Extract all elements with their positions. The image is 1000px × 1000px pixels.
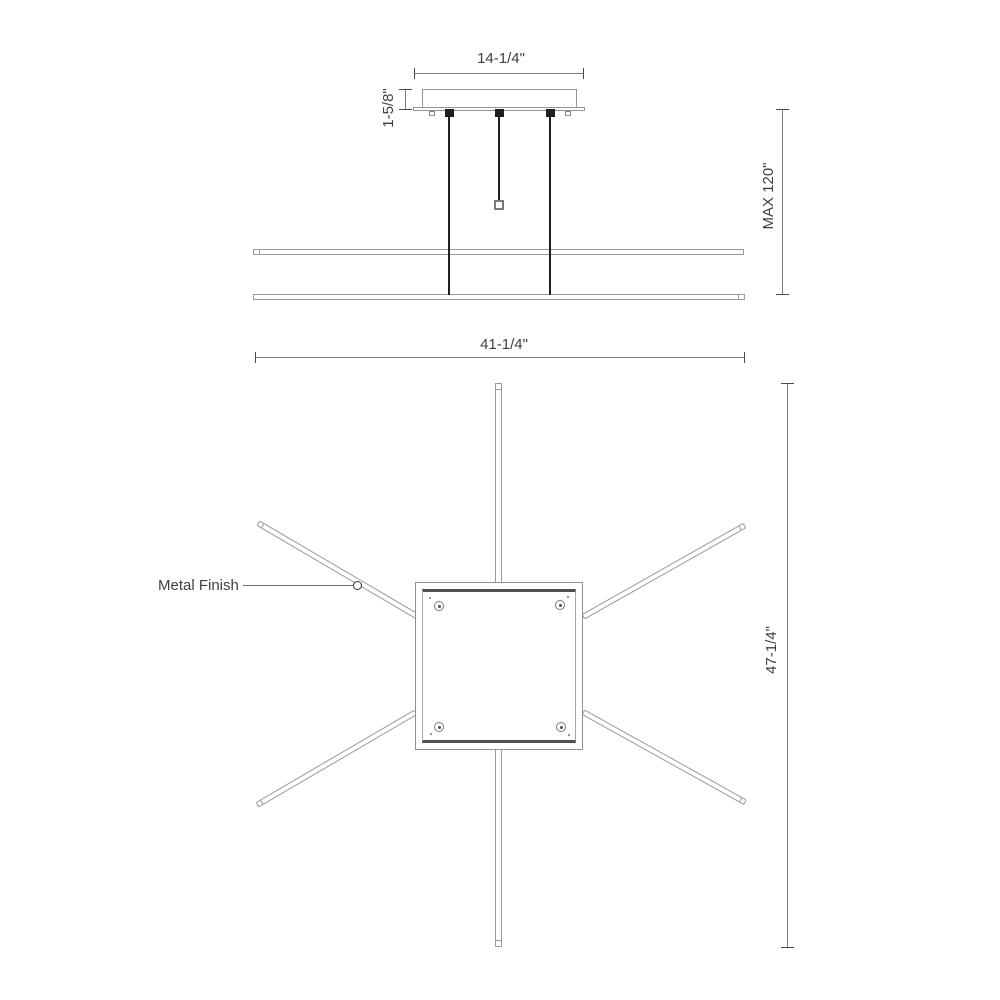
pilot-hole: [567, 596, 569, 598]
pilot-hole: [429, 597, 431, 599]
screw-center: [560, 726, 563, 729]
power-cord-center: [498, 117, 500, 200]
overall-depth-dimension-line: [787, 383, 788, 948]
dimension-tick: [781, 383, 794, 384]
plan-view: Metal Finish 47-1/4": [0, 0, 1000, 1000]
diagram-canvas: 14-1/4" 1-5/8" MAX 120": [0, 0, 1000, 1000]
power-cord-connector: [494, 200, 504, 210]
cable-gripper-right: [546, 109, 555, 117]
arm-endcap: [739, 798, 742, 802]
canopy-plan-square: [415, 582, 583, 750]
metal-finish-callout-circle: [353, 581, 362, 590]
arm-endcap: [496, 940, 501, 941]
arm-lower-left: [255, 710, 417, 808]
screw-center: [438, 726, 441, 729]
bar-endcap: [259, 250, 260, 254]
canopy-screw-icon: [555, 600, 565, 610]
dimension-tick: [781, 947, 794, 948]
arm-upper-left: [256, 520, 419, 619]
arm-lower-right: [582, 709, 747, 805]
arm-top: [495, 383, 502, 583]
canopy-screw-icon: [434, 601, 444, 611]
pilot-hole: [568, 734, 570, 736]
canopy-screw-icon: [434, 722, 444, 732]
suspension-cable-left: [448, 117, 450, 295]
plate-screw-right: [565, 111, 571, 116]
light-bar-lower: [253, 294, 745, 300]
screw-center: [438, 605, 441, 608]
screw-center: [559, 604, 562, 607]
arm-endcap: [261, 524, 264, 528]
arm-endcap: [496, 389, 501, 390]
bar-endcap: [738, 295, 739, 299]
canopy-screw-icon: [556, 722, 566, 732]
arm-endcap: [739, 526, 742, 530]
cable-gripper-left: [445, 109, 454, 117]
metal-finish-label: Metal Finish: [158, 577, 239, 594]
overall-depth-dimension-label: 47-1/4": [763, 550, 781, 750]
plate-screw-left: [429, 111, 435, 116]
metal-finish-leader-line: [243, 585, 353, 586]
canopy-plan-inner-square: [422, 589, 576, 743]
cable-gripper-center: [495, 109, 504, 117]
arm-endcap: [260, 800, 263, 804]
arm-bottom: [495, 749, 502, 947]
pilot-hole: [430, 733, 432, 735]
arm-upper-right: [582, 523, 747, 620]
light-bar-upper: [253, 249, 744, 255]
suspension-cable-right: [549, 117, 551, 295]
